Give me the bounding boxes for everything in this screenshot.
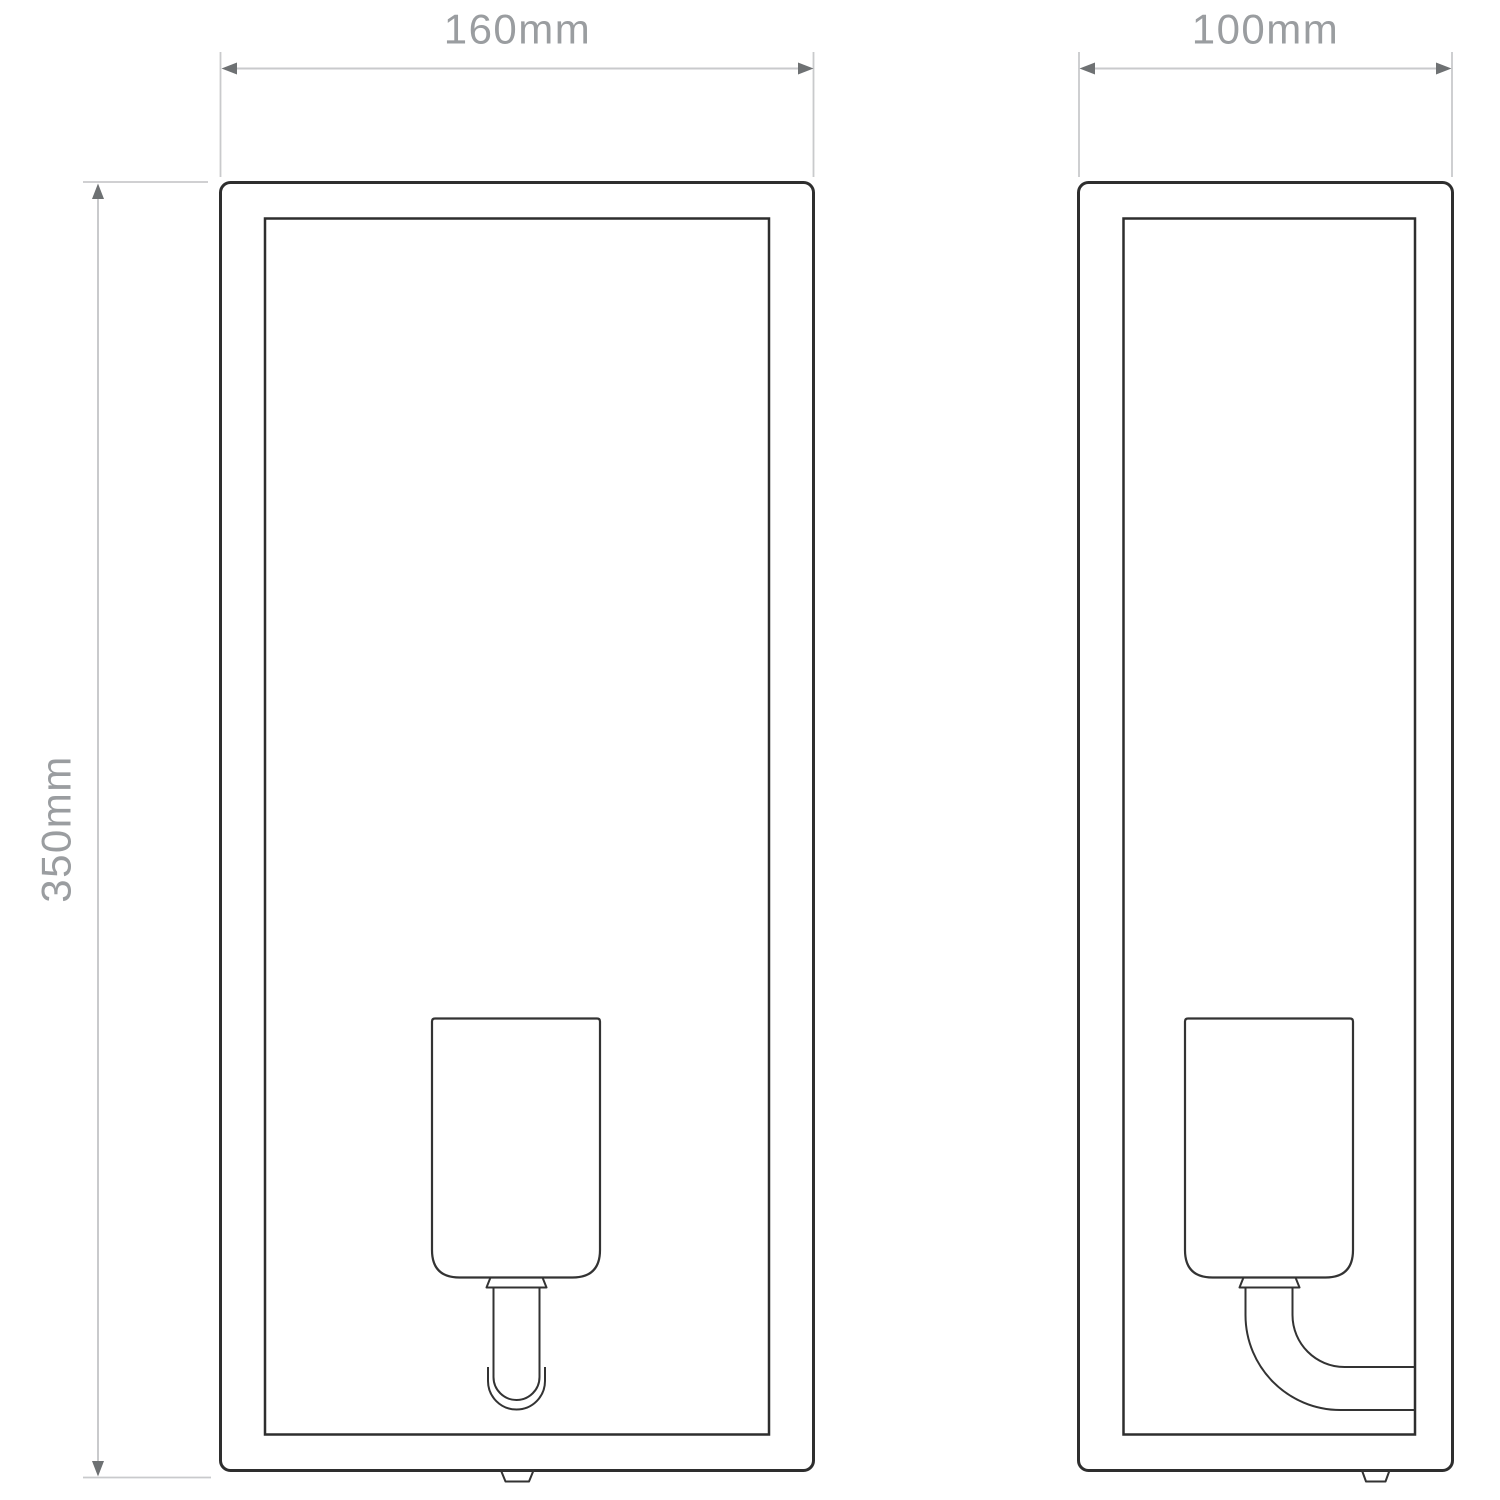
arrow-left-icon: [1080, 63, 1096, 75]
front-lamp-holder: [432, 1019, 600, 1278]
arrow-right-icon: [798, 63, 814, 75]
side-lamp-holder: [1185, 1019, 1353, 1278]
depth-dimension: 100mm: [1079, 6, 1452, 178]
width-dimension-label: 160mm: [444, 6, 592, 53]
arrow-left-icon: [222, 63, 238, 75]
side-cable-tab: [1362, 1471, 1390, 1482]
arrow-right-icon: [1436, 63, 1452, 75]
technical-drawing-page: 160mm 100mm 350mm: [0, 0, 1500, 1500]
side-view: [1079, 183, 1453, 1482]
arrow-down-icon: [92, 1461, 104, 1477]
arrow-up-icon: [92, 184, 104, 200]
dimension-drawing: 160mm 100mm 350mm: [0, 0, 1500, 1500]
front-view: [221, 183, 814, 1482]
height-dimension-label: 350mm: [33, 755, 80, 903]
depth-dimension-label: 100mm: [1192, 6, 1340, 53]
height-dimension: 350mm: [33, 182, 212, 1478]
front-cable-tab: [501, 1471, 534, 1482]
width-dimension: 160mm: [221, 6, 814, 178]
